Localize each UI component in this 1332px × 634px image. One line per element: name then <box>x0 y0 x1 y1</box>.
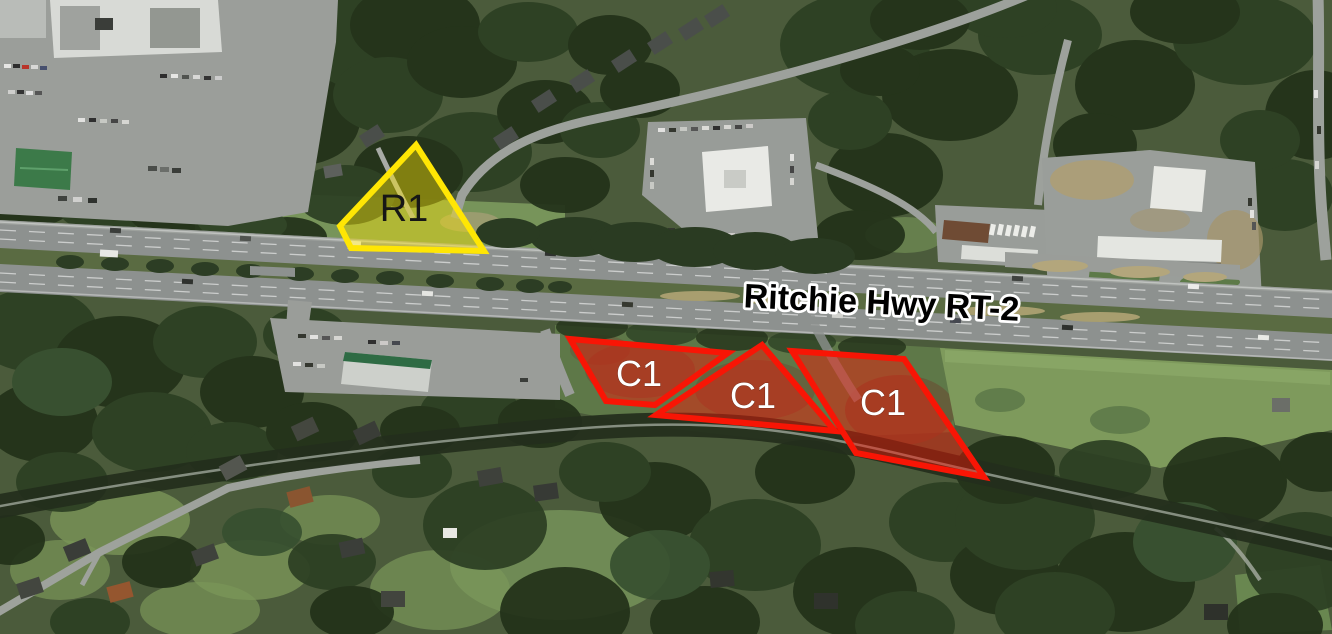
brown-roof-building <box>942 220 990 243</box>
zone-label-c1-middle: C1 <box>730 375 776 416</box>
zone-label-c1-east: C1 <box>860 382 906 423</box>
aerial-map-canvas: R1 C1 C1 C1 Ritchie Hwy RT-2 <box>0 0 1332 634</box>
truck <box>100 250 118 258</box>
square-white-building <box>1150 166 1206 212</box>
zone-label-c1-west: C1 <box>616 353 662 394</box>
aerial-map: R1 C1 C1 C1 Ritchie Hwy RT-2 <box>0 0 1332 634</box>
industrial-area <box>0 0 338 226</box>
shed <box>1272 398 1290 412</box>
industrial-building-2 <box>0 0 46 38</box>
strip-white-building <box>1097 236 1222 262</box>
zone-label-r1: R1 <box>380 188 429 230</box>
